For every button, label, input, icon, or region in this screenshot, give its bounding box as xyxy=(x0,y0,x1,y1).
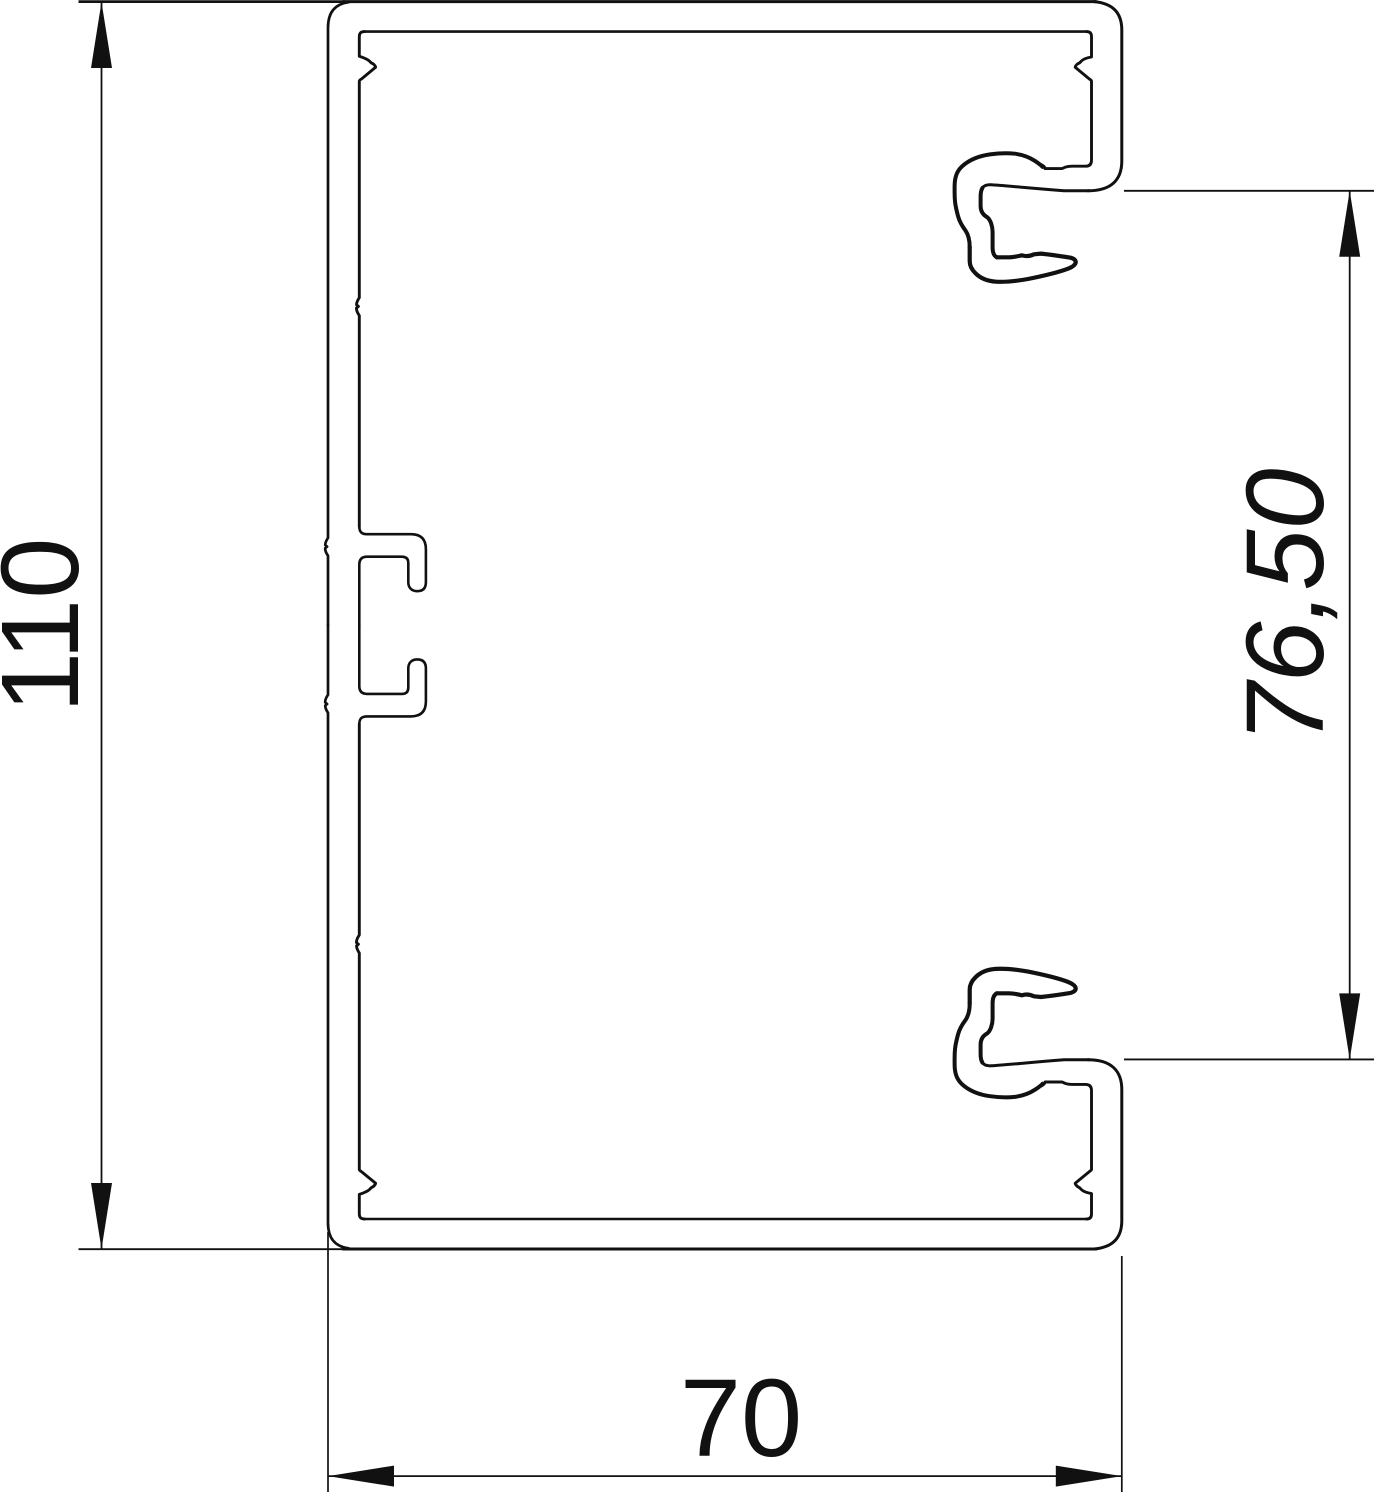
svg-text:110: 110 xyxy=(0,538,102,713)
svg-text:70: 70 xyxy=(680,1357,802,1480)
svg-text:76,50: 76,50 xyxy=(1224,468,1347,743)
